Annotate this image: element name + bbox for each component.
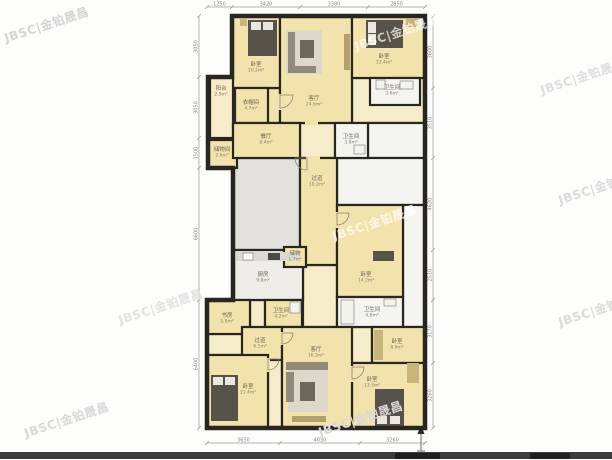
room-label-bedroom-mid-right: 卧室 (360, 270, 372, 278)
dim-label: 6600 (194, 228, 200, 241)
dim-label: 3380 (328, 2, 341, 8)
room-area-hallway: 10.2m² (309, 182, 325, 188)
room-label-closet-upper: 衣帽间 (243, 98, 260, 106)
dim-label: 3050 (194, 101, 200, 114)
kitchen-sink-icon (243, 253, 253, 260)
dim-label: 3170 (428, 325, 434, 338)
room-void-right-3 (403, 205, 425, 327)
dim-label: 1500 (194, 147, 200, 160)
pillow-icon (251, 22, 261, 30)
room-label-bedroom-right-small: 卧室 (391, 337, 403, 345)
coffee-table-top-icon (300, 40, 314, 58)
room-label-dining: 餐厅 (260, 132, 272, 140)
dim-label: 3650 (237, 438, 250, 444)
room-area-bath-mid-right: 4.8m² (365, 313, 379, 319)
tv-cabinet-bottom-icon (292, 416, 326, 422)
pillow-icon (390, 416, 400, 424)
room-area-hallway-bottom: 6.1m² (253, 344, 267, 350)
dim-label: 4620 (428, 198, 434, 211)
room-label-bath-mid-right: 卫生间 (364, 305, 381, 313)
pillow-icon (263, 22, 273, 30)
nightstand-icon (240, 19, 247, 26)
pillow-icon (368, 34, 376, 45)
room-area-living-top: 24.6m² (306, 102, 322, 108)
room-area-study-bottom-left: 5.6m² (220, 319, 234, 325)
room-label-balcony: 阳台 (215, 84, 227, 92)
room-label-bath-center: 卫生间 (343, 132, 360, 140)
room-area-living-bottom: 16.2m² (308, 353, 324, 359)
room-area-bath-bottom: 4.2m² (274, 314, 288, 320)
room-label-bath-bottom: 卫生间 (273, 306, 290, 314)
room-corridor-mid (303, 265, 337, 327)
room-void-right-2 (337, 158, 425, 205)
room-area-closet-upper: 4.7m² (244, 106, 258, 112)
dim-label: 3260 (386, 438, 399, 444)
bath-fixture-icon (354, 145, 365, 154)
room-area-bath-center: 3.8m² (344, 140, 358, 146)
room-hall-bl (268, 355, 282, 428)
room-void-right-1 (368, 123, 425, 158)
dim-label: 3260 (428, 389, 434, 402)
room-label-hallway: 过道 (311, 174, 323, 182)
tv-cabinet-top-icon (344, 34, 350, 70)
desk-mid-right-icon (373, 251, 394, 261)
room-area-bedroom-top-right: 12.4m² (376, 60, 392, 66)
bath-sink-icon (384, 299, 396, 306)
room-label-living-top: 客厅 (308, 94, 320, 102)
sofa-top-seat-icon (288, 66, 316, 73)
stove-icon (268, 253, 280, 260)
room-area-balcony: 2.9m² (214, 92, 228, 98)
room-area-bath-top-right: 3.6m² (385, 91, 399, 97)
room-area-kitchen: 9.8m² (256, 278, 270, 284)
room-area-bedroom-right-small: 8.9m² (390, 345, 404, 351)
dim-label: 3050 (194, 40, 200, 53)
wardrobe-top-right-icon (406, 19, 418, 27)
photo-edge-dark-segment (530, 453, 570, 459)
sofa-bottom-side-icon (286, 372, 294, 402)
door-gap (306, 156, 320, 160)
room-area-bedroom-bottom-left: 11.4m² (240, 390, 256, 396)
dim-label: 1250 (213, 2, 226, 8)
room-label-hallway-bottom: 过道 (254, 336, 266, 344)
dim-label: 6400 (194, 358, 200, 371)
room-area-bedroom-top-left: 10.2m² (248, 68, 264, 74)
wardrobe-right-small-icon (374, 330, 383, 360)
sofa-bottom-back-icon (286, 362, 328, 370)
room-label-living-bottom: 客厅 (310, 345, 322, 353)
bath-sink-icon (400, 81, 413, 89)
coffee-table-bottom-icon (300, 382, 315, 401)
room-label-kitchen: 厨房 (257, 270, 269, 278)
dim-label: 3600 (428, 46, 434, 59)
room-label-study-bottom-left: 书房 (221, 311, 233, 319)
room-area-dining: 8.4m² (259, 140, 273, 146)
dim-label: 2510 (428, 269, 434, 282)
wardrobe-bottom-right-icon (407, 363, 419, 383)
room-label-bath-top-right: 卫生间 (384, 83, 401, 91)
pillow-icon (377, 416, 387, 424)
room-label-closet-small: 储物 (289, 249, 301, 257)
pillow-icon (213, 377, 223, 385)
room-label-bedroom-bottom-left: 卧室 (242, 382, 254, 390)
room-label-bedroom-bottom-right: 卧室 (366, 375, 378, 383)
room-label-storeroom-left: 储物间 (214, 145, 231, 153)
dim-label: 3510 (428, 117, 434, 130)
pillow-icon (368, 22, 376, 33)
room-label-bedroom-top-right: 卧室 (378, 52, 390, 60)
room-area-bedroom-bottom-right: 13.3m² (364, 383, 380, 389)
room-public-hall (233, 158, 300, 250)
dim-label: 2850 (390, 2, 403, 8)
floor-plan-svg: 卧室10.2m²客厅24.6m²卧室12.4m²卫生间3.6m²衣帽间4.7m²… (0, 0, 612, 460)
bathtub-icon (341, 300, 354, 324)
pillow-icon (225, 377, 235, 385)
door-gap (305, 121, 318, 125)
room-area-closet-small: 1.7m² (288, 257, 302, 263)
dim-label: 3420 (260, 2, 273, 8)
toilet-icon (290, 302, 300, 313)
photo-edge-dark-segment (395, 453, 440, 459)
photo-edge-bar (0, 452, 612, 459)
floor-plan-page: 卧室10.2m²客厅24.6m²卧室12.4m²卫生间3.6m²衣帽间4.7m²… (0, 0, 612, 460)
room-label-bedroom-top-left: 卧室 (250, 60, 262, 68)
room-area-bedroom-mid-right: 14.2m² (358, 278, 374, 284)
room-hall-strip-top (300, 123, 335, 158)
room-area-storeroom-left: 2.6m² (215, 153, 229, 159)
dim-label: 4030 (314, 438, 327, 444)
